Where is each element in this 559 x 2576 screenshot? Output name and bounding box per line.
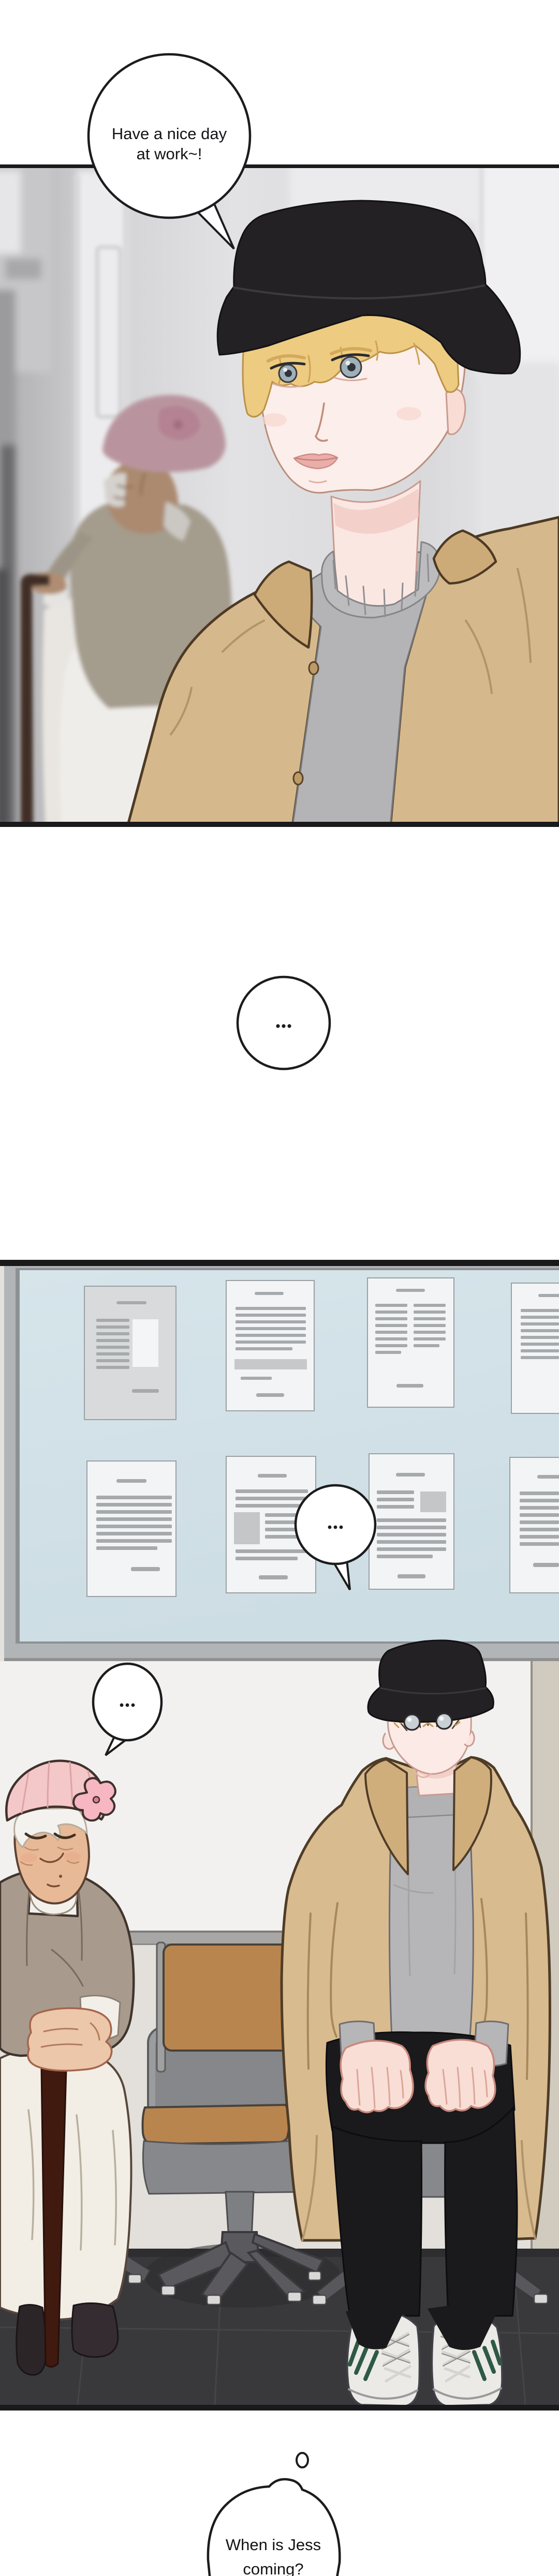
svg-text:Have a nice day: Have a nice day — [112, 125, 227, 143]
svg-text:at work~!: at work~! — [137, 145, 202, 163]
svg-text:coming?: coming? — [243, 2560, 303, 2576]
svg-text:When is Jess: When is Jess — [226, 2536, 321, 2554]
